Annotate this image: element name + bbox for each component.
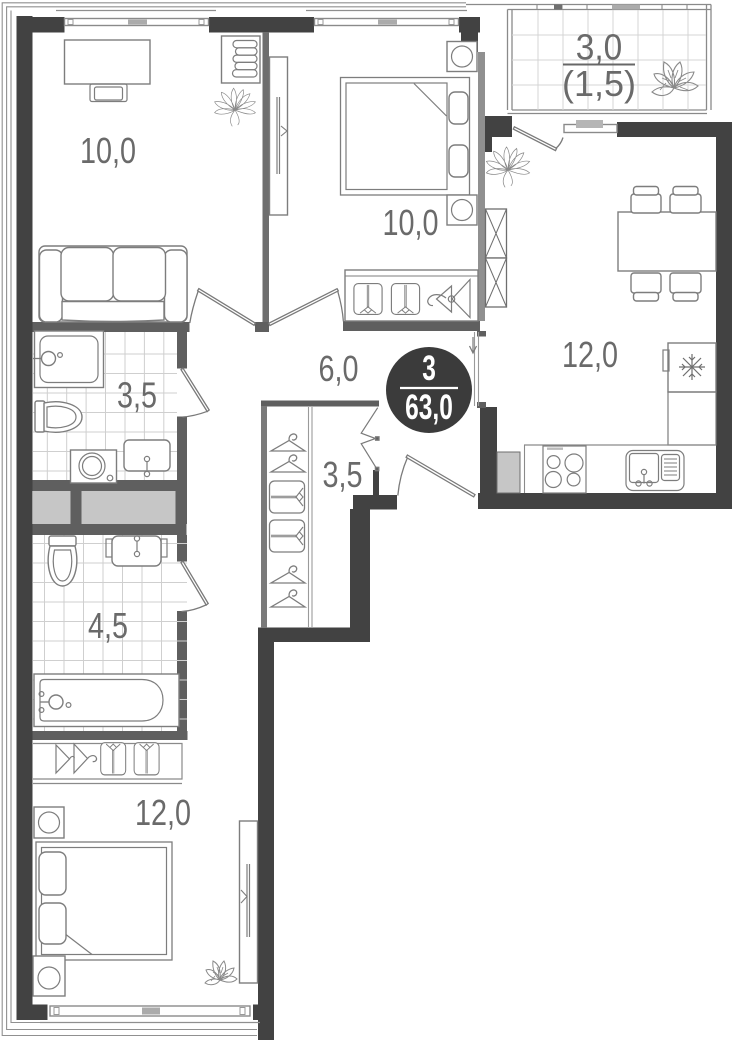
- svg-text:10,0: 10,0: [80, 130, 136, 171]
- svg-text:3,5: 3,5: [117, 374, 157, 415]
- svg-text:6,0: 6,0: [318, 348, 358, 389]
- svg-text:4,5: 4,5: [88, 605, 128, 646]
- svg-text:12,0: 12,0: [562, 334, 618, 375]
- svg-text:63,0: 63,0: [405, 389, 453, 427]
- svg-text:3: 3: [422, 350, 436, 388]
- svg-text:3,5: 3,5: [322, 454, 362, 495]
- svg-text:12,0: 12,0: [135, 792, 191, 833]
- svg-text:(1,5): (1,5): [562, 63, 636, 104]
- svg-text:10,0: 10,0: [382, 202, 438, 243]
- svg-text:3,0: 3,0: [576, 28, 623, 67]
